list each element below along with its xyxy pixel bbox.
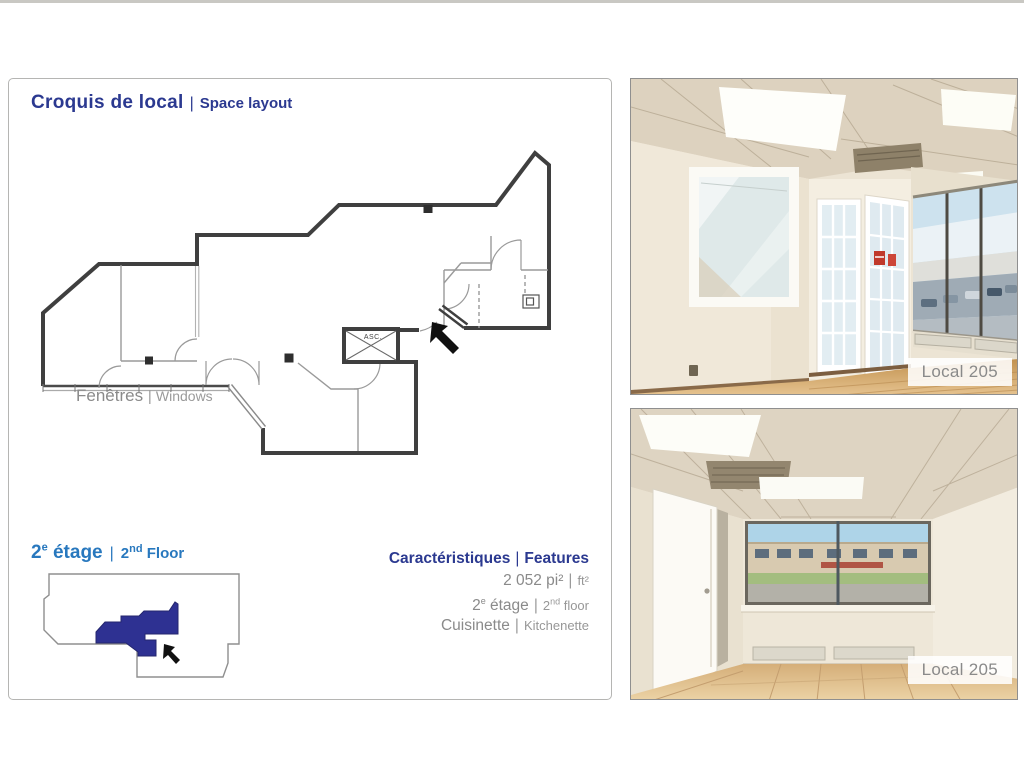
french-doors — [809, 179, 911, 379]
sink-fixture — [523, 295, 539, 308]
parking-view — [913, 273, 1018, 341]
feature-area: 2 052 pi²|ft² — [239, 571, 589, 591]
street-building-windows — [755, 549, 917, 558]
brochure-page: Croquis de local|Space layout — [0, 0, 1024, 768]
interior-window — [689, 167, 799, 307]
photo-label: Local 205 — [908, 656, 1012, 684]
photo-interior-entrance: Local 205 — [630, 78, 1018, 395]
page-top-rule — [0, 0, 1024, 3]
door-handle — [704, 588, 709, 593]
wall-outlet — [689, 365, 698, 376]
exterior-windows — [911, 167, 1018, 359]
baseboard-heater — [753, 647, 914, 660]
features-block: Caractéristiques|Features 2 052 pi²|ft² … — [239, 549, 589, 636]
floor-title-french: 2e étage — [31, 542, 103, 563]
floor-title-english: 2nd Floor — [121, 545, 184, 562]
office-wall — [631, 141, 809, 395]
photo-interior-office: Local 205 — [630, 408, 1018, 700]
door-arc — [444, 284, 469, 309]
window-sill — [741, 605, 935, 612]
floor-title: 2e étage|2nd Floor — [31, 542, 184, 564]
french-door-closed — [817, 199, 861, 373]
cursor-arrow-icon — [163, 644, 180, 664]
windows-label: Fenêtres | Windows — [76, 386, 213, 405]
photo-top-scene — [631, 79, 1018, 395]
space-layout-panel: Croquis de local|Space layout — [8, 78, 612, 700]
french-door-open — [865, 195, 909, 377]
floor-title-separator: | — [103, 545, 121, 562]
door-arc — [354, 363, 380, 389]
open-door — [653, 489, 728, 700]
red-sign — [888, 254, 896, 266]
exterior-walls-lower-room — [263, 362, 416, 453]
door-arc — [491, 240, 521, 270]
ceiling-light-panel — [941, 89, 1016, 131]
red-sign — [874, 251, 885, 265]
right-wall — [933, 487, 1018, 681]
door-arc — [175, 339, 197, 361]
street-sign — [821, 562, 883, 568]
entry-door-leaf — [439, 306, 468, 329]
floor-plan-drawing — [43, 153, 549, 453]
entrance-arrow-icon — [430, 322, 459, 354]
interior-walls — [121, 236, 548, 451]
mini-map — [44, 574, 239, 677]
back-wall — [741, 519, 935, 667]
feature-kitchenette: Cuisinette|Kitchenette — [239, 616, 589, 636]
photo-label: Local 205 — [908, 358, 1012, 386]
street-window — [745, 521, 931, 605]
ceiling-light-panel — [759, 477, 864, 499]
elevator-label: ASC. — [364, 334, 382, 341]
door-frame-gap — [717, 509, 728, 667]
feature-floor: 2e étage|2nd floor — [239, 591, 589, 616]
double-door-arcs — [206, 359, 259, 385]
features-heading: Caractéristiques|Features — [239, 549, 589, 569]
